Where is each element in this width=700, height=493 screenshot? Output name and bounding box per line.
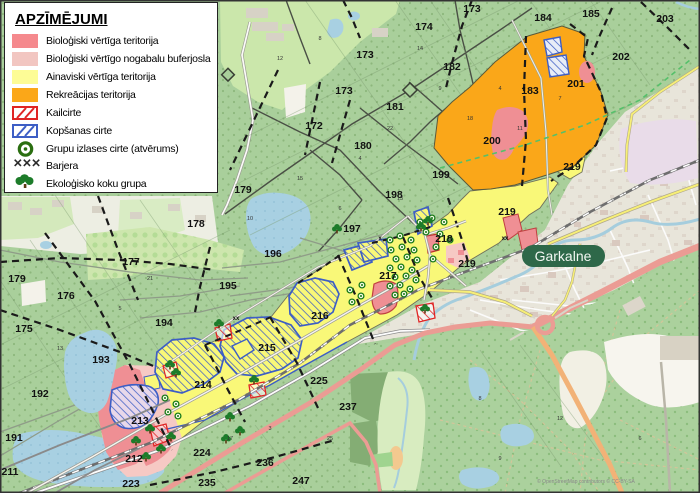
svg-text:183: 183 xyxy=(521,85,539,97)
svg-text:179: 179 xyxy=(8,273,26,285)
svg-text:xx: xx xyxy=(233,316,240,322)
svg-text:224: 224 xyxy=(193,447,211,459)
svg-text:178: 178 xyxy=(187,218,205,230)
svg-text:193: 193 xyxy=(92,354,110,366)
svg-text:9: 9 xyxy=(498,456,501,462)
svg-text:21: 21 xyxy=(147,276,153,282)
svg-text:9: 9 xyxy=(438,86,441,92)
svg-text:11: 11 xyxy=(517,126,523,132)
svg-text:191: 191 xyxy=(5,432,23,444)
svg-text:13: 13 xyxy=(397,196,403,202)
svg-text:195: 195 xyxy=(219,280,237,292)
svg-text:201: 201 xyxy=(567,78,585,90)
svg-text:25: 25 xyxy=(327,436,333,442)
svg-text:215: 215 xyxy=(258,342,276,354)
svg-text:177: 177 xyxy=(122,256,140,268)
svg-text:181: 181 xyxy=(386,101,404,113)
svg-text:4: 4 xyxy=(498,86,501,92)
svg-text:173: 173 xyxy=(335,85,353,97)
svg-text:197: 197 xyxy=(343,223,361,235)
svg-text:6: 6 xyxy=(338,206,341,212)
svg-text:211: 211 xyxy=(2,466,19,478)
svg-text:© OpenStreetMap contributors ©: © OpenStreetMap contributors © CC-BY-SA xyxy=(537,478,635,485)
svg-text:200: 200 xyxy=(483,135,501,147)
svg-text:179: 179 xyxy=(234,184,252,196)
svg-text:12: 12 xyxy=(557,416,563,422)
svg-text:4: 4 xyxy=(358,156,361,162)
svg-text:235: 235 xyxy=(198,477,216,489)
svg-text:219: 219 xyxy=(498,206,516,218)
svg-text:174: 174 xyxy=(415,21,433,33)
svg-text:203: 203 xyxy=(656,13,674,25)
svg-text:3: 3 xyxy=(268,426,271,432)
svg-text:xx: xx xyxy=(502,236,509,242)
svg-text:182: 182 xyxy=(443,61,461,73)
svg-text:184: 184 xyxy=(534,12,552,24)
svg-text:194: 194 xyxy=(155,317,173,329)
svg-text:217: 217 xyxy=(379,270,397,282)
svg-text:6: 6 xyxy=(638,436,641,442)
svg-text:14: 14 xyxy=(417,46,423,52)
svg-text:237: 237 xyxy=(339,401,357,413)
svg-text:8: 8 xyxy=(478,396,481,402)
svg-text:175: 175 xyxy=(15,323,33,335)
svg-text:185: 185 xyxy=(582,8,600,20)
svg-text:223: 223 xyxy=(122,478,140,490)
svg-text:219: 219 xyxy=(458,258,476,270)
svg-text:180: 180 xyxy=(354,140,372,152)
svg-text:214: 214 xyxy=(194,379,212,391)
svg-text:218: 218 xyxy=(435,233,453,245)
svg-text:247: 247 xyxy=(292,475,310,487)
svg-text:Garkalne: Garkalne xyxy=(535,248,592,264)
svg-text:172: 172 xyxy=(305,120,323,132)
svg-text:7: 7 xyxy=(558,96,561,102)
svg-text:173: 173 xyxy=(463,3,481,15)
svg-text:8: 8 xyxy=(318,36,321,42)
svg-text:196: 196 xyxy=(264,248,282,260)
svg-text:173: 173 xyxy=(356,49,374,61)
svg-text:13: 13 xyxy=(57,346,63,352)
svg-text:10: 10 xyxy=(247,216,253,222)
svg-text:212: 212 xyxy=(125,453,143,465)
svg-text:202: 202 xyxy=(612,51,630,63)
svg-text:219: 219 xyxy=(563,161,581,173)
svg-text:22: 22 xyxy=(387,126,393,132)
svg-text:18: 18 xyxy=(467,116,473,122)
svg-text:216: 216 xyxy=(311,310,329,322)
svg-text:176: 176 xyxy=(57,290,75,302)
svg-text:15: 15 xyxy=(297,176,303,182)
svg-text:17: 17 xyxy=(227,436,233,442)
svg-text:199: 199 xyxy=(432,169,450,181)
svg-text:213: 213 xyxy=(131,415,149,427)
svg-text:12: 12 xyxy=(277,56,283,62)
svg-text:236: 236 xyxy=(256,457,274,469)
svg-text:192: 192 xyxy=(31,388,49,400)
svg-text:225: 225 xyxy=(310,375,328,387)
svg-text:5: 5 xyxy=(118,306,121,312)
